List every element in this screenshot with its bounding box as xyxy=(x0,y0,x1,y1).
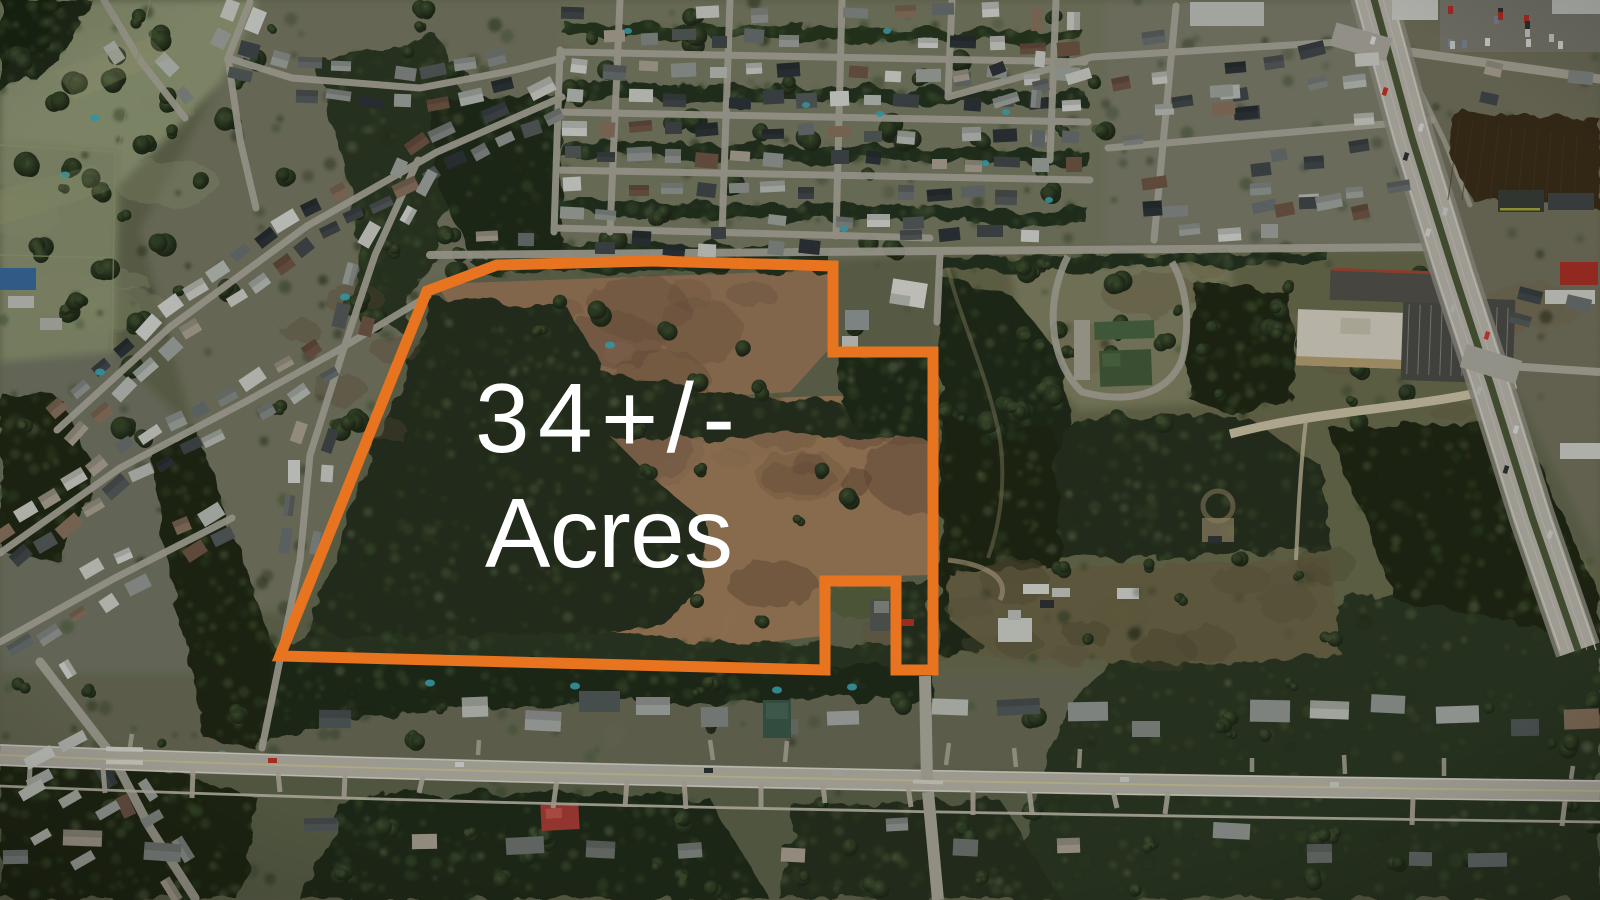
svg-text:Acres: Acres xyxy=(485,478,733,588)
